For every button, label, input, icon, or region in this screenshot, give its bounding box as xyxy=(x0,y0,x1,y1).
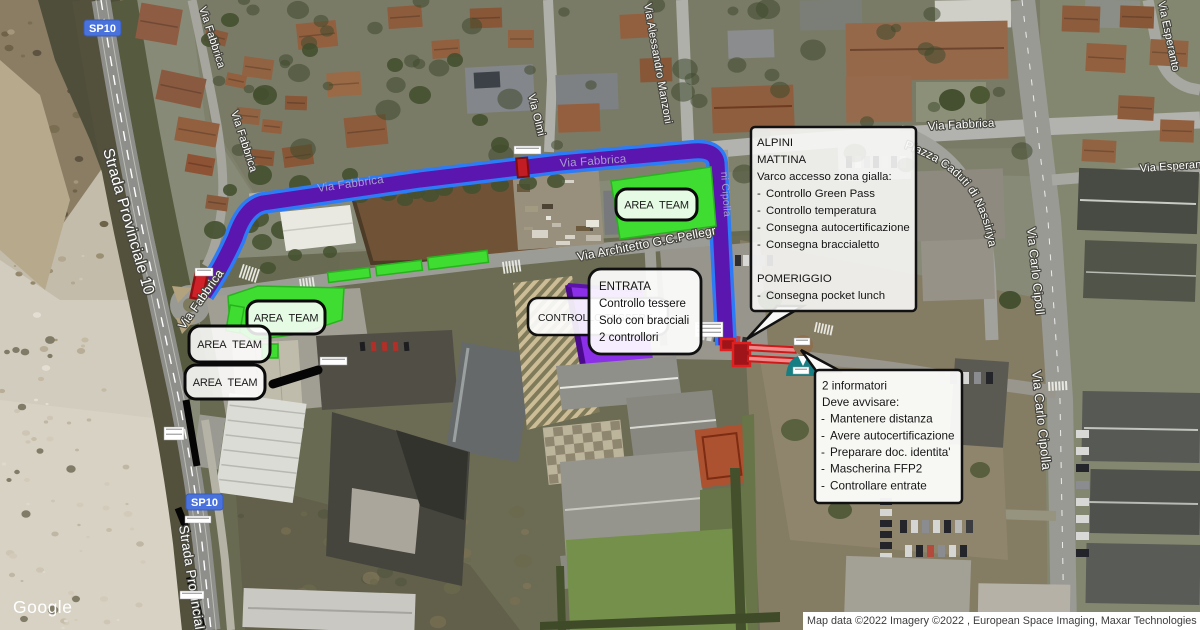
svg-text:Deve avvisare:: Deve avvisare: xyxy=(822,396,899,409)
svg-text:Avere autocertificazione: Avere autocertificazione xyxy=(830,429,955,442)
svg-text:2 informatori: 2 informatori xyxy=(822,379,887,392)
svg-text:Mantenere distanza: Mantenere distanza xyxy=(830,413,933,426)
svg-text:Mascherina FFP2: Mascherina FFP2 xyxy=(830,463,922,476)
svg-text:SP10: SP10 xyxy=(191,497,218,509)
svg-text:Consegna autocertificazione: Consegna autocertificazione xyxy=(766,222,910,234)
svg-text:AREA TEAM: AREA TEAM xyxy=(197,339,262,351)
svg-text:SP10: SP10 xyxy=(89,23,116,35)
svg-text:-: - xyxy=(821,413,825,426)
svg-text:Consegna braccialetto: Consegna braccialetto xyxy=(766,239,879,251)
svg-text:Consegna pocket lunch: Consegna pocket lunch xyxy=(766,290,885,302)
svg-text:-: - xyxy=(821,446,825,459)
svg-text:ENTRATA: ENTRATA xyxy=(599,281,651,293)
svg-text:Varco accesso zona gialla:: Varco accesso zona gialla: xyxy=(757,171,892,183)
svg-text:-: - xyxy=(821,429,825,442)
svg-text:-: - xyxy=(757,290,761,302)
svg-text:Controllo temperatura: Controllo temperatura xyxy=(766,205,877,217)
svg-text:Map data ©2022 Imagery ©2022 ,: Map data ©2022 Imagery ©2022 , European … xyxy=(807,615,1197,627)
svg-text:Controllo tessere: Controllo tessere xyxy=(599,298,686,310)
svg-text:AREA TEAM: AREA TEAM xyxy=(254,313,319,325)
svg-text:-: - xyxy=(757,239,761,251)
svg-text:-: - xyxy=(821,463,825,476)
svg-text:-: - xyxy=(821,479,825,492)
svg-text:POMERIGGIO: POMERIGGIO xyxy=(757,273,832,285)
svg-text:2 controllori: 2 controllori xyxy=(599,332,658,344)
svg-text:-: - xyxy=(757,222,761,234)
svg-text:Preparare doc. identita': Preparare doc. identita' xyxy=(830,446,950,459)
svg-text:AREA TEAM: AREA TEAM xyxy=(624,200,689,212)
svg-text:ALPINI: ALPINI xyxy=(757,137,793,149)
svg-text:Controllare entrate: Controllare entrate xyxy=(830,479,927,492)
svg-text:-: - xyxy=(757,188,761,200)
svg-text:Controllo Green Pass: Controllo Green Pass xyxy=(766,188,875,200)
svg-text:Google: Google xyxy=(13,597,72,617)
svg-text:Solo con bracciali: Solo con bracciali xyxy=(599,315,689,327)
svg-text:MATTINA: MATTINA xyxy=(757,154,807,166)
svg-text:AREA TEAM: AREA TEAM xyxy=(193,377,258,389)
svg-text:-: - xyxy=(757,205,761,217)
